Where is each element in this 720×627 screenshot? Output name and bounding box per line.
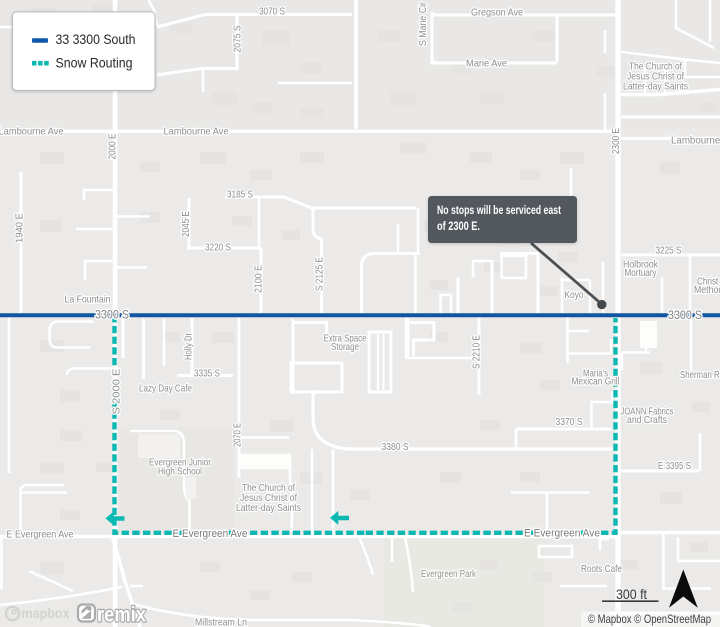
- svg-text:No stops will be serviced east: No stops will be serviced east: [437, 205, 561, 217]
- svg-text:2000 E: 2000 E: [106, 134, 118, 160]
- svg-text:3220 S: 3220 S: [205, 242, 231, 254]
- svg-text:3300 S: 3300 S: [95, 308, 129, 322]
- svg-text:300 ft: 300 ft: [616, 586, 647, 602]
- svg-text:2045 E: 2045 E: [180, 211, 192, 237]
- svg-text:Mexican Grill: Mexican Grill: [572, 376, 620, 388]
- svg-text:2300 E: 2300 E: [610, 128, 622, 154]
- svg-text:S 2210 E: S 2210 E: [470, 335, 482, 369]
- svg-text:Marie Ave: Marie Ave: [466, 58, 507, 70]
- svg-text:Lambourne Ave: Lambourne Ave: [671, 135, 720, 147]
- svg-text:E 3395 S: E 3395 S: [658, 460, 691, 472]
- svg-text:Lazy Day Cafe: Lazy Day Cafe: [139, 383, 192, 395]
- svg-text:3225 S: 3225 S: [656, 245, 682, 257]
- svg-text:and Crafts: and Crafts: [627, 414, 667, 426]
- svg-text:Evergreen Park: Evergreen Park: [421, 568, 477, 580]
- svg-text:3185 S: 3185 S: [227, 189, 253, 201]
- svg-text:Holly Dr: Holly Dr: [182, 333, 194, 360]
- svg-text:3335 S: 3335 S: [194, 368, 220, 380]
- svg-text:2075 S: 2075 S: [231, 26, 243, 53]
- svg-text:Sherman Rd: Sherman Rd: [680, 369, 720, 381]
- svg-text:3370 S: 3370 S: [556, 416, 583, 428]
- svg-text:3300 S: 3300 S: [668, 308, 702, 322]
- svg-text:S 2125 E: S 2125 E: [313, 257, 325, 291]
- svg-text:mapbox: mapbox: [22, 606, 70, 621]
- svg-text:Latter-day Saints: Latter-day Saints: [236, 502, 301, 514]
- svg-text:Storage: Storage: [331, 341, 359, 353]
- svg-text:S Marie Cir: S Marie Cir: [417, 2, 429, 46]
- svg-text:2100 E: 2100 E: [252, 265, 264, 293]
- svg-text:Millstream Ln: Millstream Ln: [195, 617, 247, 627]
- svg-text:remix: remix: [97, 604, 146, 627]
- svg-text:3380 S: 3380 S: [382, 441, 409, 453]
- svg-text:2070 E: 2070 E: [231, 423, 243, 447]
- svg-text:Lambourne Ave: Lambourne Ave: [0, 126, 64, 138]
- svg-text:Methodist: Methodist: [694, 284, 720, 296]
- svg-text:La Fountain: La Fountain: [65, 294, 111, 306]
- svg-text:Snow Routing: Snow Routing: [56, 54, 133, 70]
- svg-text:High School: High School: [158, 466, 202, 478]
- svg-text:of 2300 E.: of 2300 E.: [437, 221, 480, 233]
- svg-text:E Evergreen Ave: E Evergreen Ave: [7, 529, 74, 541]
- svg-text:Roots Cafe: Roots Cafe: [581, 563, 622, 575]
- svg-text:S 2000 E: S 2000 E: [110, 369, 122, 415]
- svg-text:Latter-day Saints: Latter-day Saints: [623, 81, 688, 93]
- svg-text:33 3300 South: 33 3300 South: [56, 31, 136, 47]
- svg-text:Gregson Ave: Gregson Ave: [471, 7, 523, 19]
- svg-text:1940 E: 1940 E: [13, 213, 25, 243]
- svg-text:3070 S: 3070 S: [259, 6, 285, 18]
- svg-text:Lambourne Ave: Lambourne Ave: [164, 126, 229, 138]
- svg-text:© Mapbox © OpenStreetMap: © Mapbox © OpenStreetMap: [588, 612, 711, 626]
- svg-text:Mortuary: Mortuary: [625, 267, 658, 279]
- svg-text:E Evergreen Ave: E Evergreen Ave: [524, 528, 600, 540]
- svg-text:E Evergreen Ave: E Evergreen Ave: [173, 528, 248, 540]
- svg-text:Koyo: Koyo: [565, 289, 584, 301]
